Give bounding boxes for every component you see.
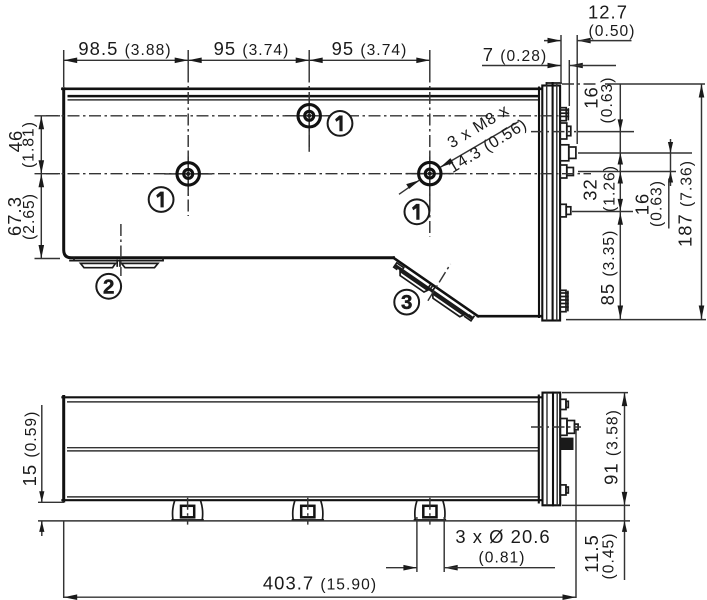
svg-text:11.5: 11.5 bbox=[581, 534, 602, 573]
svg-text:98.5 (3.88): 98.5 (3.88) bbox=[78, 38, 171, 59]
svg-text:(0.45): (0.45) bbox=[601, 532, 618, 579]
svg-text:95 (3.74): 95 (3.74) bbox=[214, 38, 290, 59]
svg-text:95 (3.74): 95 (3.74) bbox=[332, 38, 408, 59]
svg-text:3: 3 bbox=[401, 291, 412, 314]
svg-text:7 (0.28): 7 (0.28) bbox=[483, 44, 547, 65]
svg-text:(1.26): (1.26) bbox=[602, 165, 619, 212]
svg-text:3 x Ø 20.6: 3 x Ø 20.6 bbox=[455, 526, 550, 547]
svg-text:(0.63): (0.63) bbox=[649, 180, 666, 227]
svg-text:2: 2 bbox=[103, 275, 114, 298]
svg-text:(0.81): (0.81) bbox=[478, 550, 525, 567]
svg-text:403.7 (15.90): 403.7 (15.90) bbox=[263, 573, 377, 594]
svg-text:(0.63): (0.63) bbox=[599, 76, 616, 123]
svg-text:12.7: 12.7 bbox=[588, 2, 628, 23]
svg-text:(2.65): (2.65) bbox=[21, 193, 38, 240]
svg-text:(0.50): (0.50) bbox=[588, 23, 635, 40]
svg-text:91 (3.58): 91 (3.58) bbox=[601, 409, 622, 485]
svg-text:(1.81): (1.81) bbox=[20, 121, 37, 168]
svg-text:15 (0.59): 15 (0.59) bbox=[19, 411, 40, 487]
svg-text:32: 32 bbox=[580, 178, 601, 201]
svg-text:187 (7.36): 187 (7.36) bbox=[675, 160, 696, 247]
svg-text:85 (3.35): 85 (3.35) bbox=[597, 230, 618, 306]
